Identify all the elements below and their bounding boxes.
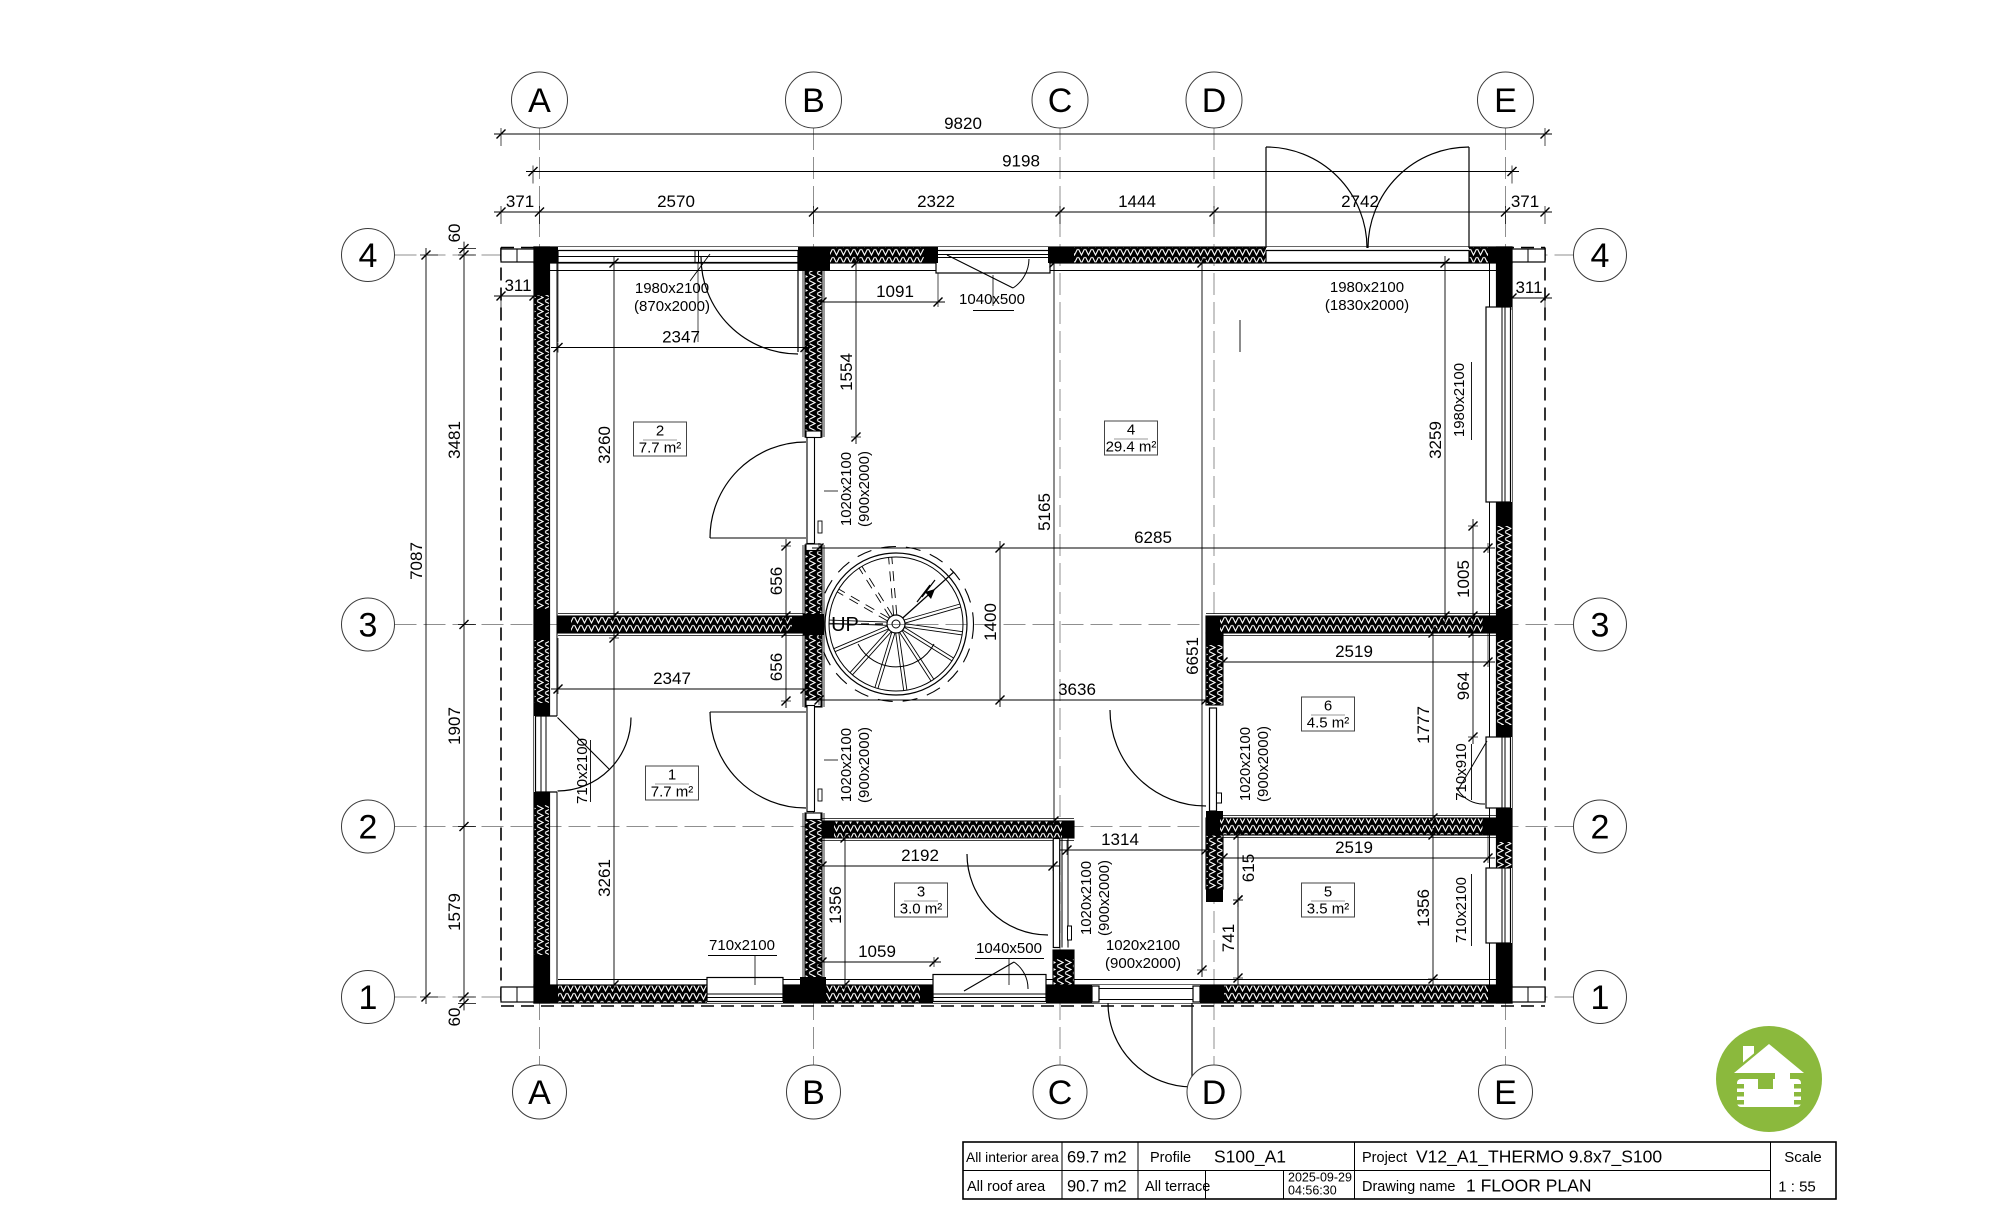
svg-text:6285: 6285	[1134, 528, 1172, 547]
svg-text:1020x2100: 1020x2100	[838, 452, 855, 526]
svg-text:1059: 1059	[858, 942, 896, 961]
svg-text:1040x500: 1040x500	[976, 940, 1042, 957]
svg-text:3259: 3259	[1426, 421, 1445, 459]
svg-text:9820: 9820	[944, 114, 982, 133]
svg-text:B: B	[802, 82, 825, 120]
svg-text:C: C	[1048, 82, 1073, 120]
svg-text:656: 656	[767, 653, 786, 681]
svg-text:1980x2100: 1980x2100	[635, 280, 709, 297]
svg-text:90.7 m2: 90.7 m2	[1067, 1178, 1127, 1196]
svg-text:E: E	[1494, 1074, 1517, 1112]
svg-text:V12_A1_THERMO 9.8x7_S100: V12_A1_THERMO 9.8x7_S100	[1416, 1147, 1662, 1168]
svg-text:All interior area: All interior area	[966, 1150, 1059, 1165]
svg-text:5: 5	[1324, 884, 1332, 901]
svg-text:4.5 m²: 4.5 m²	[1307, 715, 1350, 732]
svg-text:656: 656	[767, 567, 786, 595]
svg-text:A: A	[528, 82, 551, 120]
svg-text:Project: Project	[1362, 1150, 1407, 1166]
svg-text:Profile: Profile	[1150, 1150, 1191, 1166]
svg-text:(900x2000): (900x2000)	[1255, 726, 1272, 802]
svg-text:2570: 2570	[657, 192, 695, 211]
svg-text:2347: 2347	[662, 328, 700, 347]
svg-text:1980x2100: 1980x2100	[1330, 279, 1404, 296]
svg-text:69.7 m2: 69.7 m2	[1067, 1149, 1127, 1167]
svg-text:311: 311	[1515, 278, 1542, 297]
svg-text:Drawing name: Drawing name	[1362, 1179, 1456, 1195]
svg-text:D: D	[1202, 1074, 1227, 1112]
svg-text:1020x2100: 1020x2100	[1237, 727, 1254, 801]
svg-text:3: 3	[359, 607, 378, 645]
svg-text:1020x2100: 1020x2100	[1078, 861, 1095, 935]
svg-text:(900x2000): (900x2000)	[856, 727, 873, 803]
svg-text:1005: 1005	[1454, 560, 1473, 598]
svg-text:S100_A1: S100_A1	[1214, 1147, 1286, 1168]
svg-text:All terrace: All terrace	[1145, 1179, 1210, 1195]
svg-text:3: 3	[1591, 607, 1610, 645]
svg-text:(1830x2000): (1830x2000)	[1325, 297, 1409, 314]
svg-text:4: 4	[1127, 422, 1135, 439]
svg-text:741: 741	[1219, 924, 1238, 952]
svg-text:710x910: 710x910	[1453, 743, 1470, 801]
svg-text:C: C	[1048, 1074, 1073, 1112]
svg-text:311: 311	[504, 276, 531, 295]
svg-text:3636: 3636	[1058, 680, 1096, 699]
svg-text:2: 2	[656, 423, 664, 440]
svg-text:5165: 5165	[1035, 493, 1054, 531]
svg-text:710x2100: 710x2100	[574, 738, 591, 804]
svg-text:29.4 m²: 29.4 m²	[1106, 439, 1157, 456]
svg-text:1579: 1579	[445, 893, 464, 931]
svg-text:3.0 m²: 3.0 m²	[900, 901, 943, 918]
svg-text:60: 60	[445, 224, 464, 243]
svg-text:60: 60	[445, 1008, 464, 1027]
svg-text:1400: 1400	[981, 603, 1000, 641]
svg-text:1314: 1314	[1101, 830, 1139, 849]
svg-text:7.7 m²: 7.7 m²	[651, 784, 694, 801]
svg-text:E: E	[1494, 82, 1517, 120]
svg-text:D: D	[1202, 82, 1227, 120]
svg-text:A: A	[528, 1074, 551, 1112]
svg-text:2519: 2519	[1335, 838, 1373, 857]
svg-text:1554: 1554	[837, 353, 856, 391]
svg-text:2: 2	[359, 809, 378, 847]
svg-text:UP: UP	[831, 614, 859, 636]
svg-text:9198: 9198	[1002, 152, 1040, 171]
svg-text:All roof area: All roof area	[967, 1179, 1046, 1195]
svg-text:2742: 2742	[1341, 192, 1379, 211]
svg-text:2322: 2322	[917, 192, 955, 211]
svg-text:3.5 m²: 3.5 m²	[1307, 901, 1350, 918]
svg-text:964: 964	[1454, 672, 1473, 700]
svg-text:3: 3	[917, 884, 925, 901]
svg-text:(900x2000): (900x2000)	[1096, 860, 1113, 936]
svg-text:7087: 7087	[407, 542, 426, 580]
svg-text:4: 4	[1591, 237, 1610, 275]
svg-text:1444: 1444	[1118, 192, 1156, 211]
svg-text:2192: 2192	[901, 846, 939, 865]
svg-text:1040x500: 1040x500	[959, 291, 1025, 308]
svg-text:3261: 3261	[595, 859, 614, 897]
svg-text:1356: 1356	[1414, 889, 1433, 927]
svg-text:2519: 2519	[1335, 642, 1373, 661]
svg-text:1: 1	[359, 979, 378, 1017]
svg-text:1907: 1907	[445, 707, 464, 745]
svg-text:1020x2100: 1020x2100	[1106, 937, 1180, 954]
svg-text:1777: 1777	[1414, 706, 1433, 744]
svg-text:04:56:30: 04:56:30	[1288, 1184, 1337, 1198]
svg-text:371: 371	[1511, 192, 1539, 211]
svg-text:1091: 1091	[876, 282, 914, 301]
svg-text:(900x2000): (900x2000)	[1105, 955, 1181, 972]
svg-text:2025-09-29: 2025-09-29	[1288, 1171, 1352, 1185]
svg-text:6651: 6651	[1183, 637, 1202, 675]
svg-text:1 FLOOR PLAN: 1 FLOOR PLAN	[1466, 1176, 1591, 1196]
svg-text:Scale: Scale	[1784, 1149, 1822, 1166]
svg-text:2: 2	[1591, 809, 1610, 847]
svg-text:4: 4	[359, 237, 378, 275]
svg-text:710x2100: 710x2100	[1453, 877, 1470, 943]
svg-text:615: 615	[1239, 854, 1258, 882]
svg-text:1 : 55: 1 : 55	[1778, 1179, 1816, 1196]
svg-text:2347: 2347	[653, 669, 691, 688]
svg-text:1: 1	[668, 767, 676, 784]
svg-text:1: 1	[1591, 979, 1610, 1017]
svg-text:7.7 m²: 7.7 m²	[639, 440, 682, 457]
svg-text:3260: 3260	[595, 426, 614, 464]
svg-text:1980x2100: 1980x2100	[1451, 363, 1468, 437]
svg-text:B: B	[802, 1074, 825, 1112]
svg-text:371: 371	[506, 192, 534, 211]
svg-text:6: 6	[1324, 698, 1332, 715]
svg-text:710x2100: 710x2100	[709, 937, 775, 954]
svg-text:(870x2000): (870x2000)	[634, 298, 710, 315]
svg-text:1020x2100: 1020x2100	[838, 728, 855, 802]
svg-text:1356: 1356	[826, 886, 845, 924]
svg-text:(900x2000): (900x2000)	[856, 451, 873, 527]
svg-text:3481: 3481	[445, 421, 464, 459]
